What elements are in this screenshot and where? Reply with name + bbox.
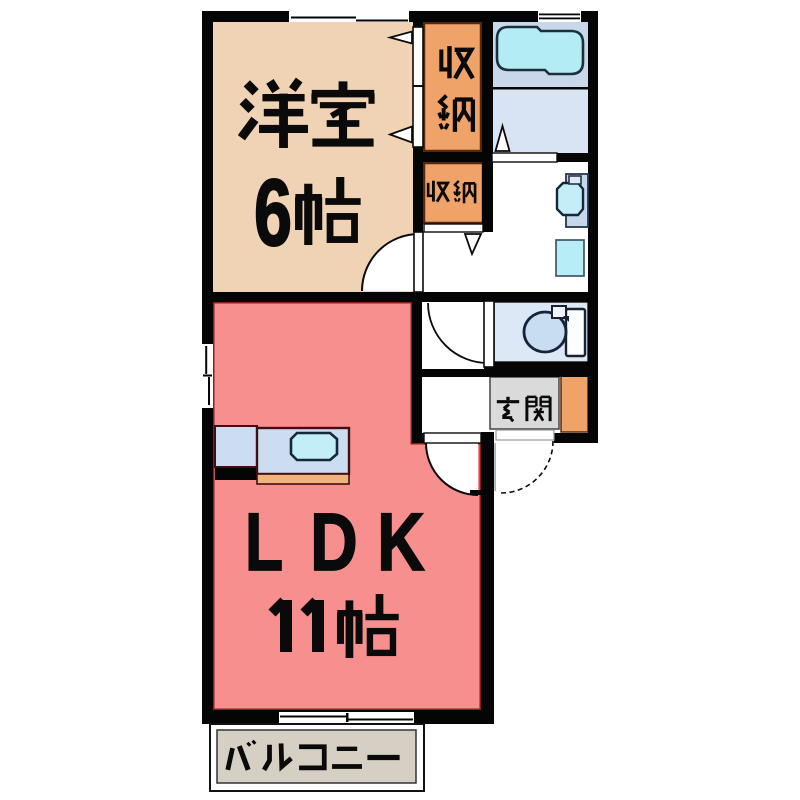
svg-text:K: K — [377, 496, 424, 588]
svg-text:L: L — [245, 497, 283, 588]
svg-text:D: D — [310, 496, 357, 588]
svg-text:6: 6 — [254, 159, 292, 266]
